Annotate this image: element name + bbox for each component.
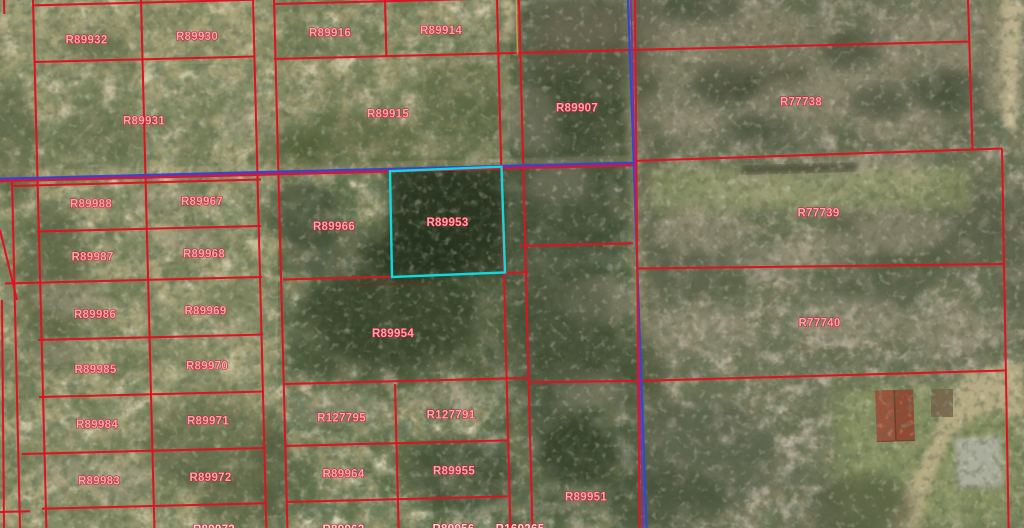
- svg-text:R89955: R89955: [433, 466, 475, 478]
- svg-text:R89984: R89984: [76, 419, 118, 431]
- svg-text:R127795: R127795: [317, 413, 366, 425]
- svg-text:R89967: R89967: [181, 196, 223, 208]
- svg-text:R89964: R89964: [322, 469, 364, 481]
- svg-text:R89916: R89916: [309, 28, 351, 40]
- svg-text:R89907: R89907: [556, 103, 598, 115]
- svg-text:R89983: R89983: [78, 476, 120, 488]
- svg-text:R169265: R169265: [496, 524, 545, 528]
- svg-text:R89932: R89932: [65, 35, 107, 47]
- svg-text:R89914: R89914: [420, 25, 462, 37]
- svg-text:R89931: R89931: [123, 116, 165, 128]
- svg-text:R89954: R89954: [372, 328, 414, 340]
- svg-text:R89972: R89972: [189, 472, 231, 484]
- svg-text:R89987: R89987: [71, 252, 113, 264]
- svg-text:R89915: R89915: [367, 109, 409, 121]
- svg-text:R89956: R89956: [432, 524, 474, 528]
- svg-text:R89985: R89985: [74, 364, 116, 376]
- svg-text:R89986: R89986: [74, 309, 116, 321]
- svg-text:R127791: R127791: [427, 410, 476, 422]
- svg-text:R89953: R89953: [426, 217, 468, 229]
- svg-text:R77738: R77738: [780, 97, 822, 109]
- svg-text:R89966: R89966: [313, 221, 355, 233]
- svg-text:R89988: R89988: [70, 199, 112, 211]
- svg-text:R89970: R89970: [186, 361, 228, 373]
- svg-text:R89968: R89968: [183, 249, 225, 261]
- svg-text:R89971: R89971: [187, 416, 229, 428]
- svg-text:R89951: R89951: [565, 492, 607, 504]
- svg-text:R89973: R89973: [193, 524, 235, 528]
- svg-text:R89930: R89930: [176, 31, 218, 43]
- svg-text:R89963: R89963: [322, 524, 364, 528]
- svg-text:R89969: R89969: [184, 306, 226, 318]
- svg-text:R77739: R77739: [797, 208, 839, 220]
- svg-text:R77740: R77740: [798, 318, 840, 330]
